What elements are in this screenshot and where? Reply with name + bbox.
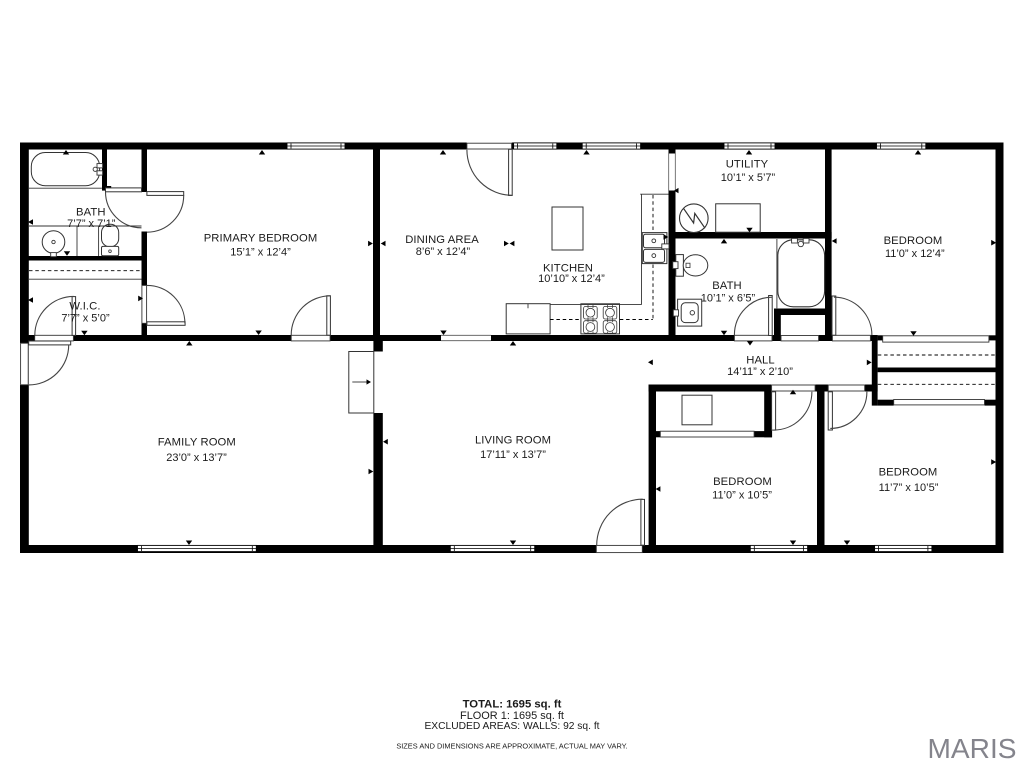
- svg-text:7’7” x 5’0”: 7’7” x 5’0”: [61, 313, 110, 325]
- svg-text:BEDROOM: BEDROOM: [713, 476, 772, 488]
- svg-text:23’0” x 13’7”: 23’0” x 13’7”: [166, 452, 227, 464]
- svg-text:TOTAL: 1695 sq. ft: TOTAL: 1695 sq. ft: [463, 699, 562, 711]
- svg-text:BEDROOM: BEDROOM: [884, 235, 943, 247]
- svg-text:15’1” x 12’4”: 15’1” x 12’4”: [230, 247, 291, 259]
- svg-text:MARIS: MARIS: [928, 733, 1017, 764]
- svg-text:10’1” x 5’7”: 10’1” x 5’7”: [721, 172, 776, 184]
- svg-text:11’7” x 10’5”: 11’7” x 10’5”: [879, 482, 939, 494]
- svg-text:FAMILY ROOM: FAMILY ROOM: [158, 437, 236, 449]
- svg-text:BEDROOM: BEDROOM: [879, 467, 938, 479]
- svg-text:10’1” x 6’5”: 10’1” x 6’5”: [701, 292, 756, 304]
- svg-text:BATH: BATH: [76, 207, 106, 219]
- svg-text:FLOOR 1: 1695 sq. ft: FLOOR 1: 1695 sq. ft: [460, 710, 564, 722]
- svg-text:10’10” x 12’4”: 10’10” x 12’4”: [538, 273, 605, 285]
- svg-text:17’11” x 13’7”: 17’11” x 13’7”: [480, 449, 546, 461]
- svg-text:SIZES AND DIMENSIONS ARE APPRO: SIZES AND DIMENSIONS ARE APPROXIMATE, AC…: [396, 741, 627, 750]
- svg-text:11’0” x 12’4”: 11’0” x 12’4”: [885, 248, 945, 260]
- svg-text:7’7” x 7’1”: 7’7” x 7’1”: [67, 218, 116, 230]
- svg-text:PRIMARY BEDROOM: PRIMARY BEDROOM: [204, 233, 318, 245]
- svg-text:W.I.C.: W.I.C.: [69, 301, 100, 313]
- svg-text:11’0” x 10’5”: 11’0” x 10’5”: [712, 490, 772, 502]
- svg-text:UTILITY: UTILITY: [726, 159, 769, 171]
- svg-text:EXCLUDED AREAS: WALLS: 92 sq.: EXCLUDED AREAS: WALLS: 92 sq. ft: [424, 721, 599, 732]
- svg-text:14’11” x 2’10”: 14’11” x 2’10”: [727, 366, 793, 378]
- svg-text:HALL: HALL: [746, 355, 775, 367]
- svg-text:8’6” x 12’4”: 8’6” x 12’4”: [416, 246, 471, 258]
- svg-text:LIVING ROOM: LIVING ROOM: [475, 435, 551, 447]
- svg-text:DINING AREA: DINING AREA: [405, 234, 479, 246]
- svg-text:BATH: BATH: [712, 280, 742, 292]
